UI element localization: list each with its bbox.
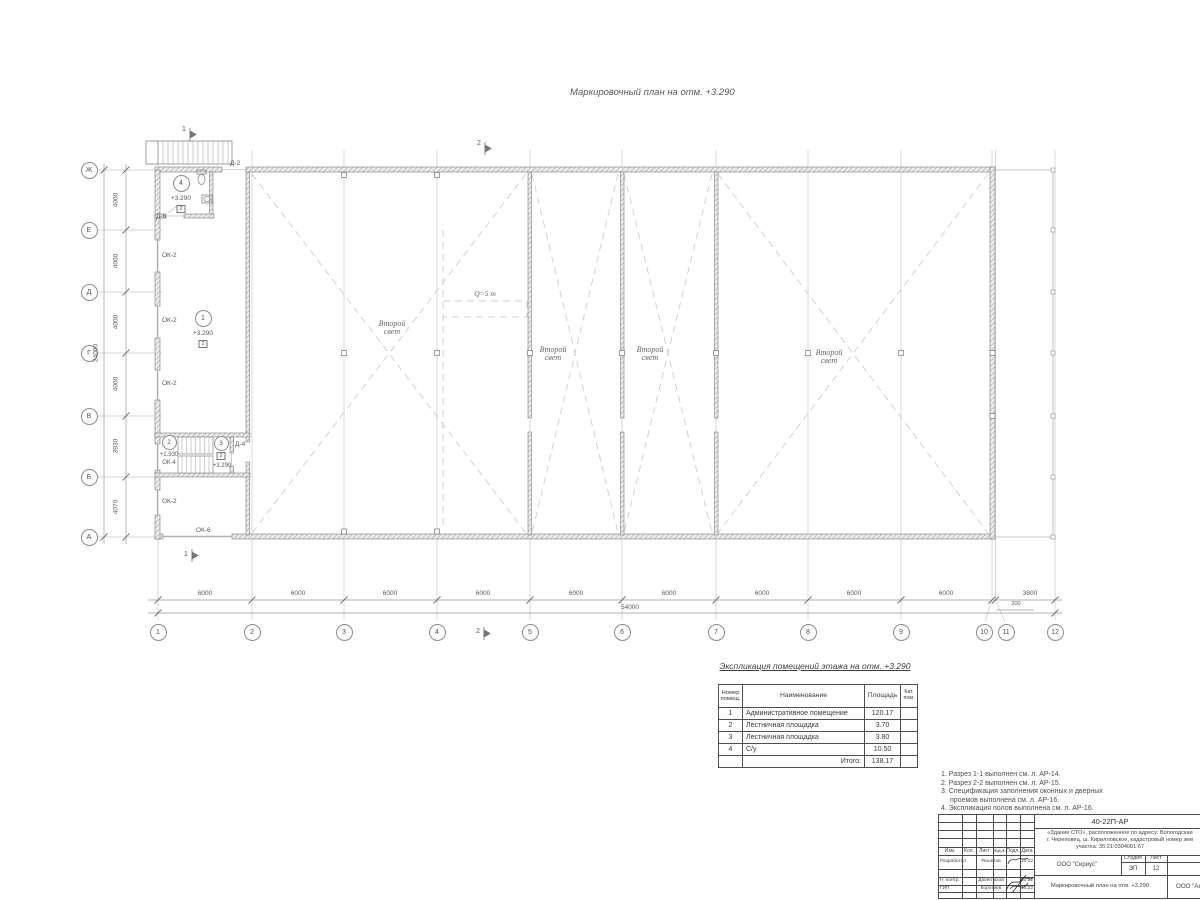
- dimension-label: 6000: [847, 591, 861, 598]
- cell-name: Лестничная площадка: [743, 720, 865, 732]
- dimension-label: 4000: [114, 315, 121, 329]
- project-description: г. Череповец, ш. Кирилловское, кадастров…: [1047, 838, 1193, 844]
- window-label: ОК-6: [196, 528, 211, 535]
- window-label: ОК-4: [162, 460, 176, 466]
- interior-stair: [178, 437, 213, 473]
- dimension-label: 6000: [569, 591, 583, 598]
- grid-row-bubble: Ж: [81, 162, 98, 179]
- room-number-bubble: 1: [195, 310, 212, 327]
- table-row: 1 Административное помещение 120.17: [719, 708, 918, 720]
- dimension-label: 6000: [939, 591, 953, 598]
- grid-row-bubble: Б: [81, 469, 98, 486]
- dimension-label: 4070: [114, 500, 121, 514]
- room-number-bubble: 3: [214, 436, 229, 451]
- stage-label: Стадия: [1124, 856, 1142, 861]
- grid-column-bubble: 8: [800, 624, 817, 641]
- sign-role: ГИП: [940, 887, 950, 892]
- dimension-label: 6000: [662, 591, 676, 598]
- section-mark: 2: [476, 628, 480, 635]
- window-lines: [158, 240, 233, 537]
- cell-num: [719, 756, 743, 768]
- cell-area: 3.80: [865, 732, 901, 744]
- window-label: ОК-2: [162, 381, 177, 388]
- dimension-label: 4000: [114, 193, 121, 207]
- column-header: Наименование: [743, 685, 865, 708]
- cell-num: 2: [719, 720, 743, 732]
- section-mark: 2: [477, 140, 481, 147]
- grid-row-bubble: А: [81, 529, 98, 546]
- door-label: Д-4: [235, 442, 245, 449]
- cell-num: 1: [719, 708, 743, 720]
- cell-area: 120.17: [865, 708, 901, 720]
- room-elevation: +3.290: [171, 196, 191, 203]
- grid-column-bubble: 12: [1047, 624, 1064, 641]
- project-description: «Здание СТО», расположенное по адресу: В…: [1047, 831, 1192, 837]
- cell-cat: [901, 744, 918, 756]
- sheet-label: Лист: [1150, 856, 1162, 861]
- note-line: 3. Спецификация заполнения оконных и две…: [941, 788, 1103, 795]
- section-flags: [190, 128, 491, 640]
- grid-column-bubble: 2: [244, 624, 261, 641]
- titleblock-header-cell: Изм.: [945, 849, 956, 854]
- dimension-ticks: [101, 167, 1059, 617]
- floor-plan-svg: [0, 0, 1200, 660]
- grid-row-bubble: Д: [81, 284, 98, 301]
- sign-name: Двоеглазов: [978, 879, 1004, 884]
- note-line: 4. Экспликация полов выполнена см. л. АР…: [941, 805, 1094, 812]
- grid-column-bubble: 5: [522, 624, 539, 641]
- second-light-label: Второй свет: [808, 349, 850, 366]
- note-line: 1. Разрез 1-1 выполнен см. л. АР-14.: [941, 771, 1061, 778]
- dimension-label: 6000: [476, 591, 490, 598]
- annex-outline: [995, 170, 1053, 537]
- dimension-label: 6000: [755, 591, 769, 598]
- dimension-label: 6000: [383, 591, 397, 598]
- cell-area: 3.70: [865, 720, 901, 732]
- room-category-box: 2: [199, 340, 208, 348]
- explication-table: Номер помещ. Наименование Площадь Кат. п…: [718, 684, 918, 768]
- section-mark: 1: [182, 126, 186, 133]
- sign-role: Разработал: [940, 860, 966, 865]
- room-number-bubble: 4: [173, 175, 190, 192]
- room-elevation: +3.290: [193, 331, 213, 338]
- table-row: 3 Лестничная площадка 3.80: [719, 732, 918, 744]
- room-elevation: +1.930: [160, 452, 179, 458]
- organization-name-2: ООО "Ал: [1176, 884, 1200, 890]
- table-row: 2 Лестничная площадка 3.70: [719, 720, 918, 732]
- crane-capacity-label: Q=5 т: [474, 290, 496, 298]
- plan-title: Маркировочный план на отм. +3.290: [570, 88, 735, 98]
- grid-column-bubble: 1: [150, 624, 167, 641]
- total-label: Итого:: [743, 756, 865, 768]
- organization-name: ООО "Сириус": [1057, 862, 1097, 868]
- cell-cat: [901, 720, 918, 732]
- dimension-label: 3930: [114, 439, 121, 453]
- drawing-title: Маркировочный план на отм. +3.290: [1051, 884, 1149, 890]
- titleblock-header-cell: Лист: [979, 849, 990, 854]
- second-light-label: Второй свет: [532, 346, 574, 363]
- dimension-label: 4000: [114, 254, 121, 268]
- column-header: Площадь: [865, 685, 901, 708]
- sign-name: Решетов: [981, 860, 1000, 865]
- cell-cat: [901, 732, 918, 744]
- explication-title: Экспликация помещений этажа на отм. +3.2…: [719, 662, 910, 671]
- second-light-label: Второй свет: [629, 346, 671, 363]
- grid-column-bubble: 11: [998, 624, 1015, 641]
- door-label: Д-6: [156, 214, 166, 221]
- dimension-label: 4000: [114, 377, 121, 391]
- sign-role: Н. контр.: [940, 879, 960, 884]
- grid-column-bubble: 7: [708, 624, 725, 641]
- grid-column-bubble: 10: [976, 624, 993, 641]
- cell-cat: [901, 756, 918, 768]
- dimension-label: 3800: [1023, 591, 1037, 598]
- dimension-label: 6000: [198, 591, 212, 598]
- table-row: 4 С/у 10.50: [719, 744, 918, 756]
- grid-column-bubble: 6: [614, 624, 631, 641]
- grid-column-bubble: 3: [336, 624, 353, 641]
- note-line: 2. Разрез 2-2 выполнен см. л. АР-15.: [941, 780, 1061, 787]
- grid-column-bubble: 4: [429, 624, 446, 641]
- crane-zone-outline: [443, 301, 527, 317]
- project-description: участка: 35:21:0304001:67: [1076, 845, 1144, 851]
- sheet-number: 12: [1153, 866, 1160, 872]
- stage-value: ЭП: [1129, 866, 1138, 872]
- room-category-box: 2: [217, 452, 226, 460]
- window-label: ОК-2: [162, 318, 177, 325]
- column-header: Кат. пом.: [901, 685, 918, 708]
- dimension-label: 6000: [291, 591, 305, 598]
- document-number: 40-22П-АР: [1091, 818, 1128, 826]
- grid-column-bubble: 9: [893, 624, 910, 641]
- cell-name: Административное помещение: [743, 708, 865, 720]
- room-number-bubble: 2: [162, 435, 177, 450]
- cell-name: С/у: [743, 744, 865, 756]
- drawing-sheet: Маркировочный план на отм. +3.290 1 2 3 …: [0, 0, 1200, 900]
- cell-cat: [901, 708, 918, 720]
- grid-row-bubble: В: [81, 408, 98, 425]
- cell-num: 3: [719, 732, 743, 744]
- titleblock-header-cell: Кол.: [964, 849, 974, 854]
- exterior-stair: [146, 141, 232, 164]
- grid-row-bubble: Е: [81, 222, 98, 239]
- window-label: ОК-2: [162, 499, 177, 506]
- total-value: 138.17: [865, 756, 901, 768]
- table-total-row: Итого: 138.17: [719, 756, 918, 768]
- second-light-label: Второй свет: [371, 320, 413, 337]
- note-line: проемов выполнена см. л. АР-16.: [950, 797, 1059, 804]
- dimension-label: 200: [1011, 602, 1020, 608]
- window-label: ОК-2: [162, 253, 177, 260]
- cell-area: 10.50: [865, 744, 901, 756]
- cell-name: Лестничная площадка: [743, 732, 865, 744]
- door-label: Д-2: [230, 161, 240, 168]
- column-header: Номер помещ.: [719, 685, 743, 708]
- sign-name: Коротаев: [981, 887, 1002, 892]
- dimension-total-label: 24000: [94, 344, 101, 362]
- room-elevation: +3.290: [213, 463, 232, 469]
- signature: [1002, 853, 1036, 899]
- section-mark: 1: [184, 551, 188, 558]
- dimension-total-label: 54000: [621, 605, 639, 612]
- grid-axis-lines: [96, 150, 1055, 622]
- cell-num: 4: [719, 744, 743, 756]
- room-category-box: 2: [177, 205, 186, 213]
